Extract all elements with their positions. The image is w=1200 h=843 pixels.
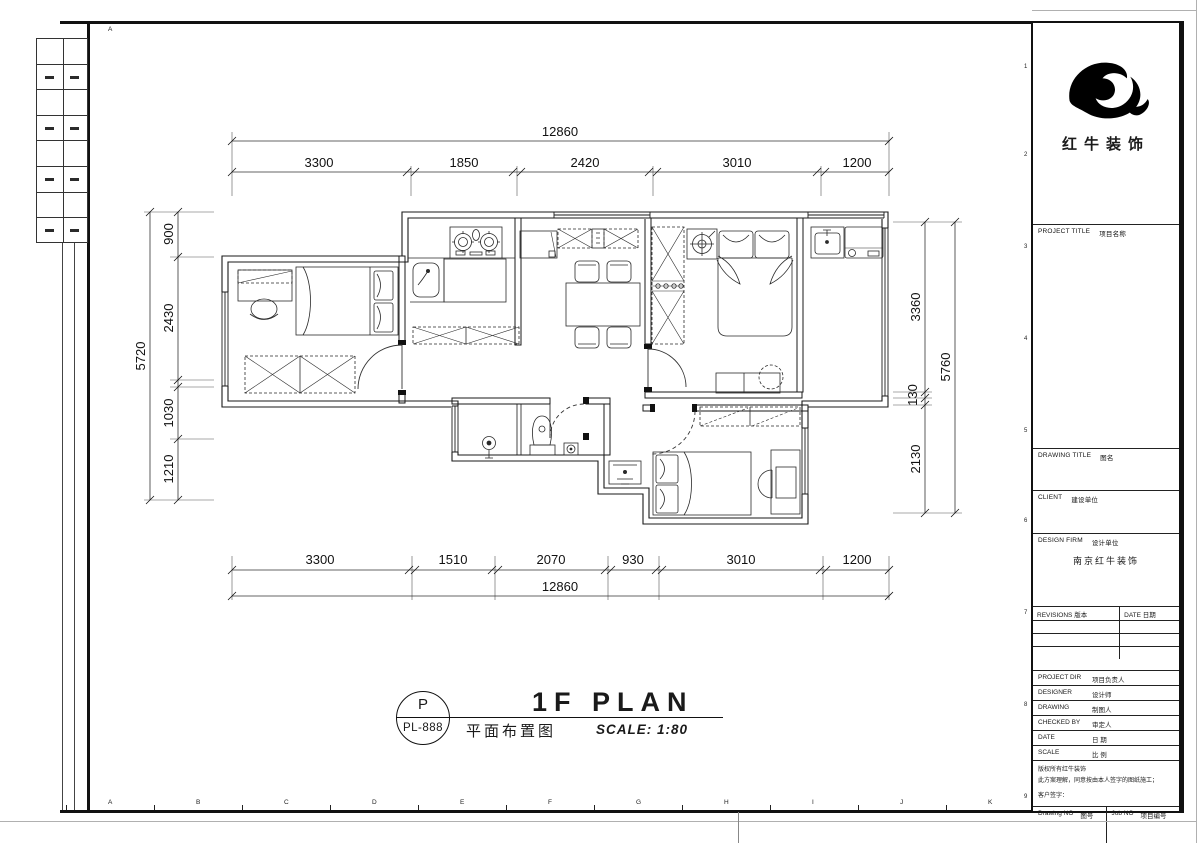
project-dir-row: PROJECT DIR项目负责人	[1033, 670, 1179, 685]
frame-top-border	[60, 21, 1184, 24]
frame-bottom-letter: K	[988, 799, 992, 806]
page-top-right-edge	[1032, 10, 1196, 11]
plan-scale-label: SCALE: 1:80	[596, 722, 688, 737]
scale-row: SCALE比 例	[1033, 745, 1179, 760]
strip-cell	[37, 90, 87, 116]
client-label-cn: 建设单位	[1071, 494, 1098, 504]
project-title-label-cn: 项目名称	[1099, 228, 1126, 238]
title-block-logo-section: 红牛装饰	[1033, 49, 1179, 224]
revisions-row-cell	[1033, 646, 1119, 659]
copyright-note: 版权所有红牛装饰 此方案理解，同意按由本人签字的图纸施工； 客户签字：	[1033, 760, 1179, 806]
svg-text:12860: 12860	[542, 124, 578, 139]
exterior-walls	[222, 212, 888, 524]
drawing-title-label-en: DRAWING TITLE	[1038, 452, 1091, 462]
strip-cell	[37, 141, 87, 167]
strip-line-outer	[62, 243, 63, 810]
frame-bottom-letter: C	[284, 799, 289, 806]
revisions-row-cell	[1033, 633, 1119, 646]
plan-title-cn: 平面布置图	[466, 720, 556, 741]
frame-right-border	[1181, 21, 1184, 813]
balcony-fixtures	[811, 227, 883, 258]
drawing-no-cell: Drawing NO图号	[1033, 807, 1106, 843]
title-block: 红牛装饰 PROJECT TITLE 项目名称 DRAWING TITLE 图名…	[1031, 21, 1181, 813]
frame-tick	[66, 805, 67, 810]
interior-walls	[399, 218, 808, 455]
svg-text:900: 900	[161, 223, 176, 245]
revisions-row-cell	[1119, 646, 1179, 659]
svg-text:1030: 1030	[161, 399, 176, 428]
frame-bottom-border	[60, 810, 1184, 813]
client-label-en: CLIENT	[1038, 494, 1062, 504]
frame-row-number: 5	[1024, 428, 1027, 434]
drawing-sheet: 12860 3300 1850 2420 3010 1200 3300 1510…	[0, 0, 1200, 843]
frame-tick	[594, 805, 595, 810]
designer-row: DESIGNER设计师	[1033, 685, 1179, 700]
frame-row-number: 9	[1024, 794, 1027, 800]
note-line2: 此方案理解，同意按由本人签字的图纸施工；	[1038, 776, 1174, 787]
project-title-label-en: PROJECT TITLE	[1038, 228, 1090, 238]
frame-row-number: 8	[1024, 702, 1027, 708]
dim-left	[144, 208, 214, 504]
job-no-cell: Job NO项目编号	[1106, 807, 1180, 843]
frame-bottom-letter: A	[108, 799, 112, 806]
strip-line-inner	[74, 243, 75, 810]
strip-cell	[37, 39, 87, 65]
company-logo-icon	[1054, 49, 1158, 125]
client-section: CLIENT 建设单位	[1033, 490, 1179, 533]
revisions-header: REVISIONS 版本	[1033, 607, 1119, 620]
design-firm-section: DESIGN FIRM 设计单位 南京红牛装饰	[1033, 533, 1179, 606]
svg-text:12860: 12860	[542, 579, 578, 594]
frame-bottom-letter: J	[900, 799, 903, 806]
svg-text:3360: 3360	[908, 293, 923, 322]
kitchen-furniture	[408, 227, 557, 344]
checked-by-row: CHECKED BY审定人	[1033, 715, 1179, 730]
bathroom-fixtures	[483, 416, 642, 484]
frame-bottom-letter: D	[372, 799, 377, 806]
frame-tick	[418, 805, 419, 810]
svg-text:5720: 5720	[133, 342, 148, 371]
revisions-row-cell	[1119, 620, 1179, 633]
frame-row-number: 3	[1024, 244, 1027, 250]
frame-bottom-letter: B	[196, 799, 200, 806]
dim-bottom-labels: 3300 1510 2070 930 3010 1200 12860	[306, 552, 872, 594]
frame-tick	[154, 805, 155, 810]
svg-text:3010: 3010	[723, 155, 752, 170]
note-line3: 客户签字：	[1038, 791, 1174, 802]
frame-top-letter: A	[108, 26, 112, 33]
svg-text:1210: 1210	[161, 455, 176, 484]
svg-text:1200: 1200	[843, 552, 872, 567]
svg-text:3010: 3010	[727, 552, 756, 567]
date-row: DATE日 期	[1033, 730, 1179, 745]
frame-bottom-letter: H	[724, 799, 729, 806]
svg-text:5760: 5760	[938, 353, 953, 382]
frame-row-number: 1	[1024, 64, 1027, 70]
frame-bottom-letter: I	[812, 799, 814, 806]
frame-tick	[770, 805, 771, 810]
frame-row-number: 4	[1024, 336, 1027, 342]
svg-text:2070: 2070	[537, 552, 566, 567]
svg-text:2130: 2130	[908, 445, 923, 474]
frame-row-number: 7	[1024, 610, 1027, 616]
bedroom1-furniture	[238, 267, 398, 393]
left-signature-strip	[36, 38, 88, 243]
svg-text:2430: 2430	[161, 304, 176, 333]
revisions-row-cell	[1033, 620, 1119, 633]
frame-tick	[330, 805, 331, 810]
dim-right-labels: 3360 130 2130 5760	[905, 293, 953, 474]
page-bottom-edge	[0, 821, 1196, 822]
revisions-section: REVISIONS 版本 DATE 日期	[1033, 606, 1179, 670]
design-firm-label-en: DESIGN FIRM	[1038, 537, 1083, 547]
bedroom3-furniture	[653, 407, 800, 515]
drawing-title-section: DRAWING TITLE 图名	[1033, 448, 1179, 490]
revisions-row-cell	[1119, 633, 1179, 646]
project-title-section: PROJECT TITLE 项目名称	[1033, 224, 1179, 448]
svg-text:3300: 3300	[305, 155, 334, 170]
plan-title-en: 1F PLAN	[532, 687, 694, 718]
design-firm-label-cn: 设计单位	[1092, 537, 1119, 547]
frame-tick	[506, 805, 507, 810]
strip-cell	[37, 116, 87, 142]
frame-bottom-letter: G	[636, 799, 641, 806]
company-name: 红牛装饰	[1033, 133, 1179, 154]
frame-bottom-letter: F	[548, 799, 552, 806]
svg-text:1510: 1510	[439, 552, 468, 567]
door-swings	[358, 345, 695, 454]
drawing-title-label-cn: 图名	[1100, 452, 1113, 462]
svg-text:1200: 1200	[843, 155, 872, 170]
frame-tick	[858, 805, 859, 810]
design-firm-value: 南京红牛装饰	[1033, 554, 1179, 567]
strip-cell	[37, 193, 87, 219]
bedroom2-furniture	[652, 227, 793, 393]
plan-code-letter: P	[397, 696, 449, 713]
strip-cell	[37, 218, 87, 244]
dining-furniture	[558, 229, 640, 348]
dim-top-labels: 12860 3300 1850 2420 3010 1200	[305, 124, 872, 170]
revisions-date-header: DATE 日期	[1119, 607, 1179, 620]
dim-left-labels: 900 2430 1030 1210 5720	[133, 223, 176, 483]
frame-bottom-letter: E	[460, 799, 464, 806]
svg-text:3300: 3300	[306, 552, 335, 567]
frame-tick	[946, 805, 947, 810]
frame-row-number: 6	[1024, 518, 1027, 524]
fold-mark	[738, 812, 739, 843]
strip-cell	[37, 65, 87, 91]
frame-tick	[242, 805, 243, 810]
svg-text:930: 930	[622, 552, 644, 567]
drawing-row: DRAWING制图人	[1033, 700, 1179, 715]
note-line1: 版权所有红牛装饰	[1038, 765, 1174, 776]
svg-text:2420: 2420	[571, 155, 600, 170]
door-jambs	[398, 340, 697, 440]
svg-text:130: 130	[905, 384, 920, 406]
frame-tick	[682, 805, 683, 810]
strip-cell	[37, 167, 87, 193]
plan-code: PL-888	[397, 722, 449, 734]
page-right-edge	[1196, 0, 1197, 843]
svg-text:1850: 1850	[450, 155, 479, 170]
frame-row-number: 2	[1024, 152, 1027, 158]
